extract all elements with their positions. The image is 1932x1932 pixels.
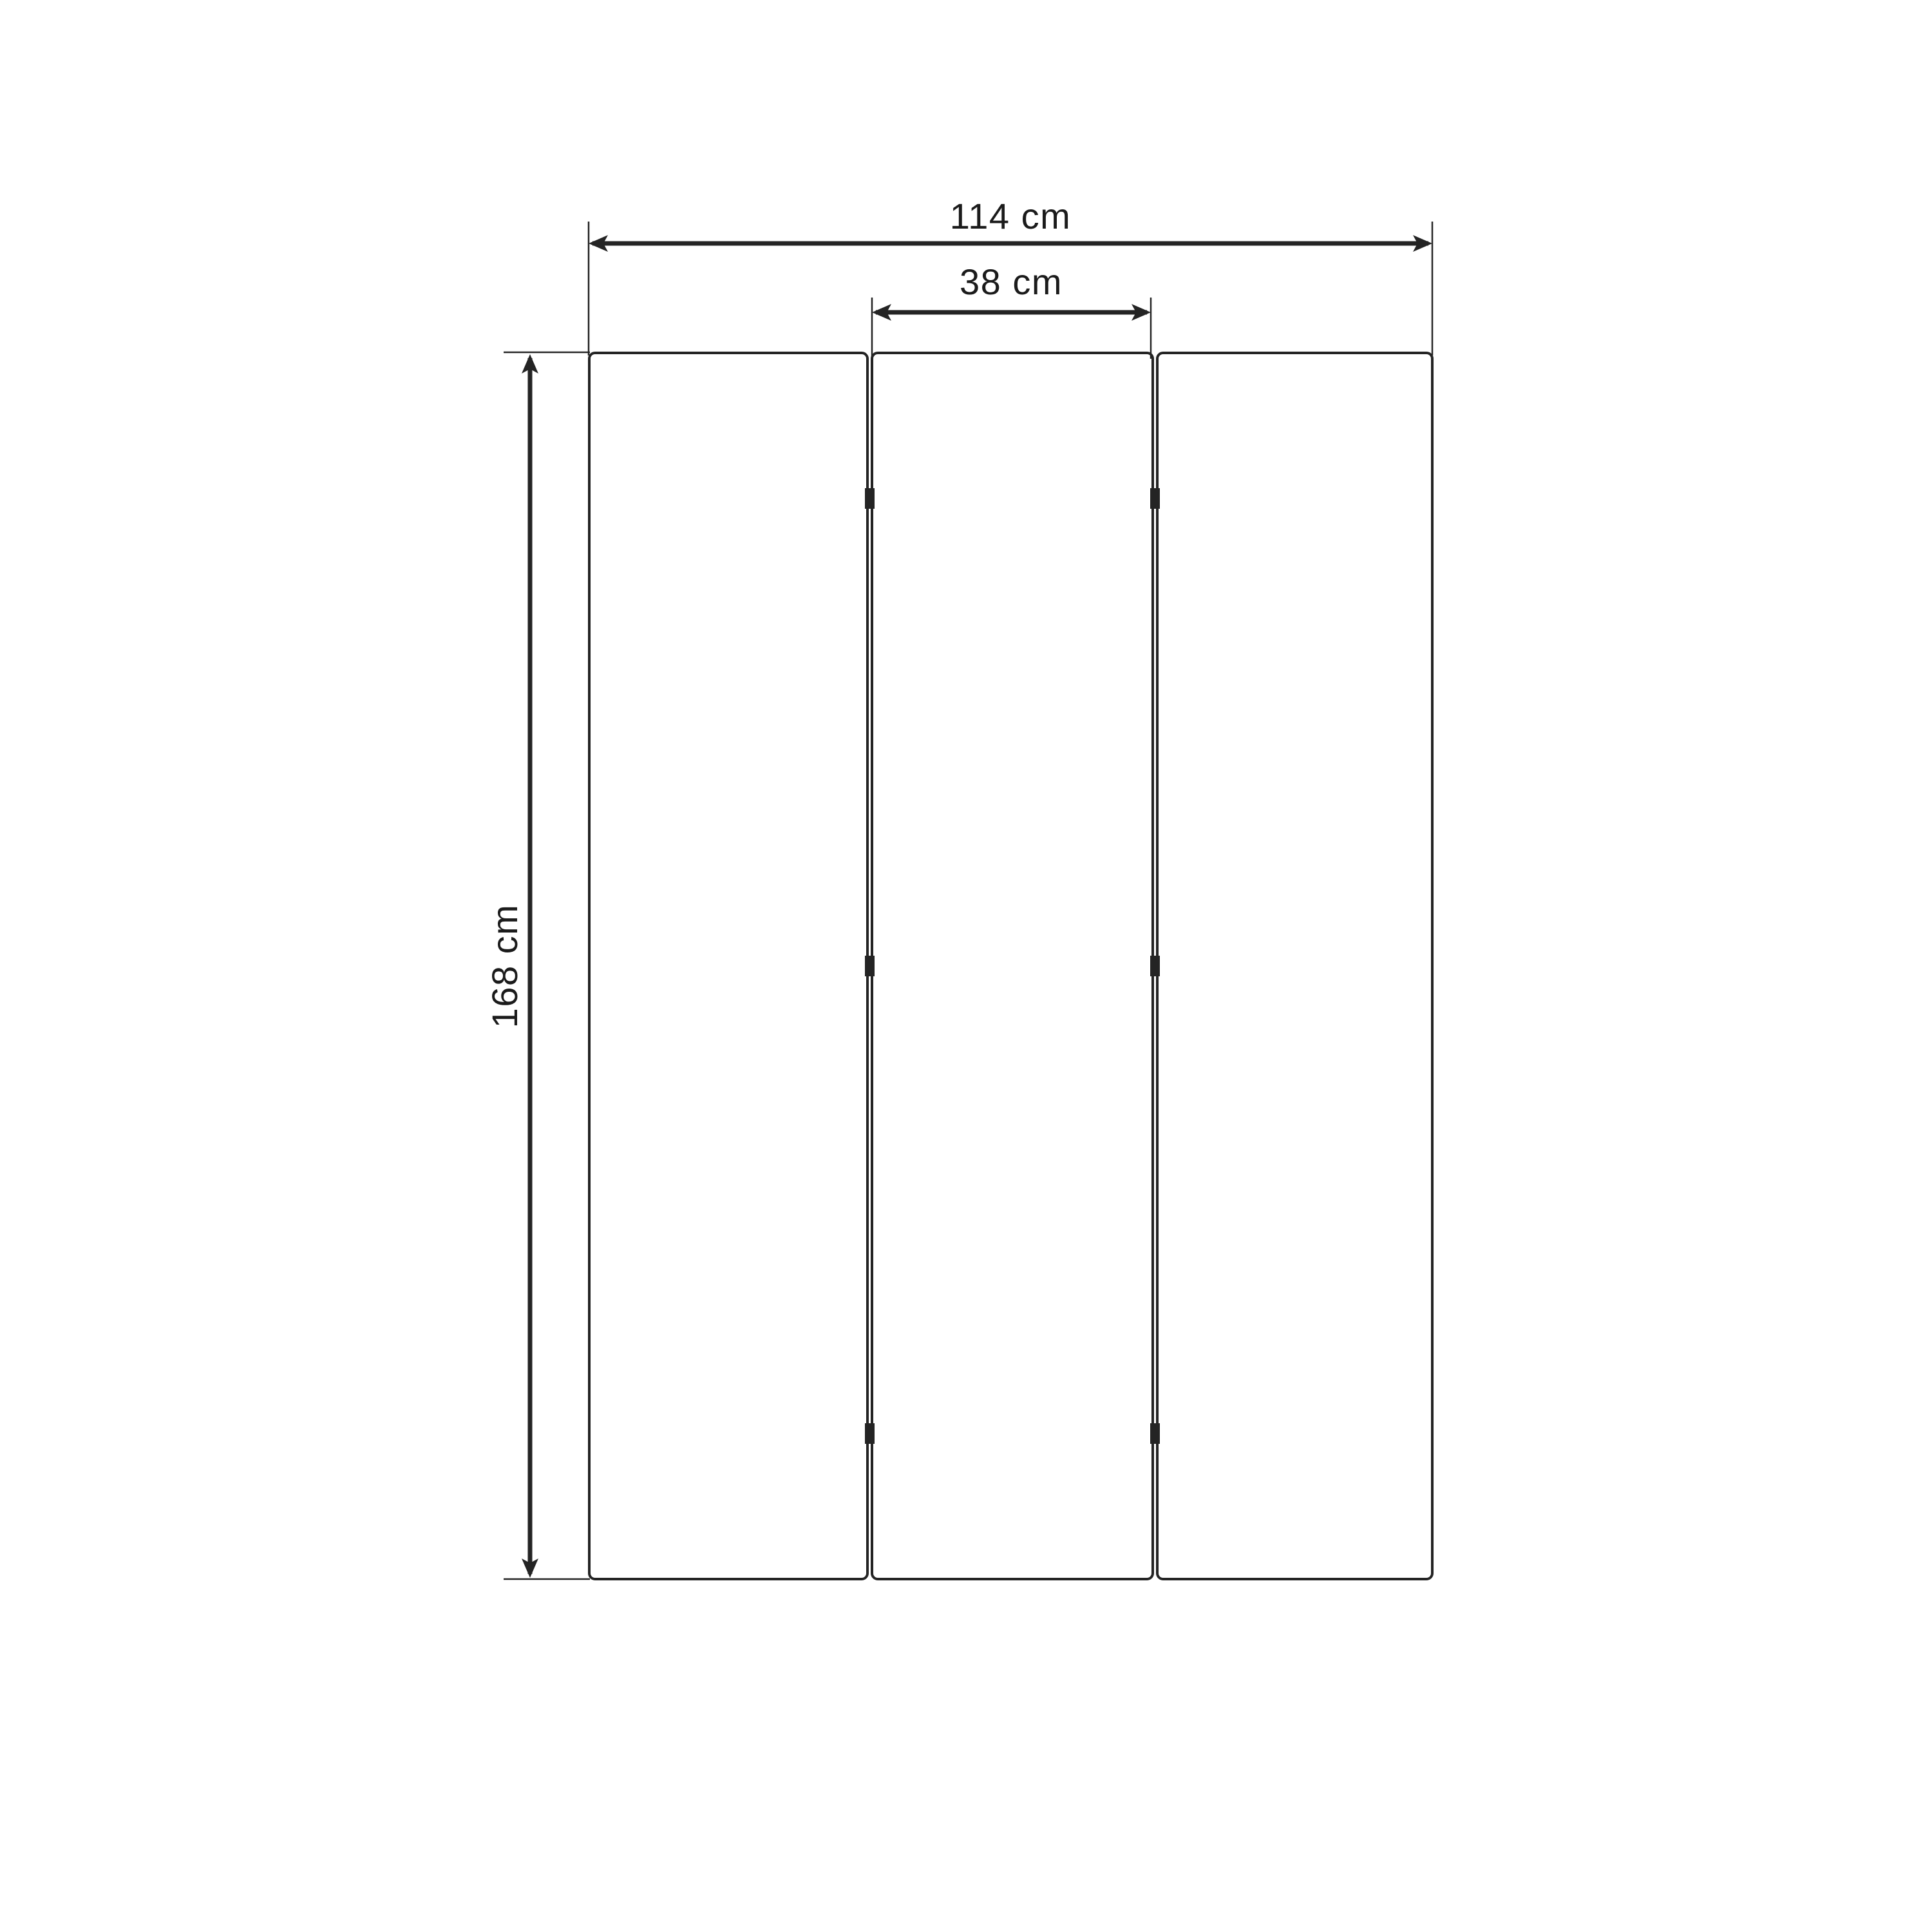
panel-middle: [872, 353, 1153, 1579]
hinge-right-middle: [1150, 956, 1160, 976]
total-width-dimension-label: 114 cm: [950, 196, 1071, 236]
panels: [589, 353, 1432, 1579]
hinge-right-bottom: [1150, 1423, 1160, 1444]
dimension-drawing: 114 cm 38 cm 168 cm: [0, 0, 1932, 1932]
panel-left: [589, 353, 867, 1579]
hinge-left-middle: [865, 956, 875, 976]
panel-right: [1157, 353, 1432, 1579]
panel-width-dimension-label: 38 cm: [960, 261, 1063, 302]
hinge-left-top: [865, 488, 875, 509]
hinge-right-top: [1150, 488, 1160, 509]
height-dimension-label: 168 cm: [484, 904, 525, 1028]
hinge-left-bottom: [865, 1423, 875, 1444]
